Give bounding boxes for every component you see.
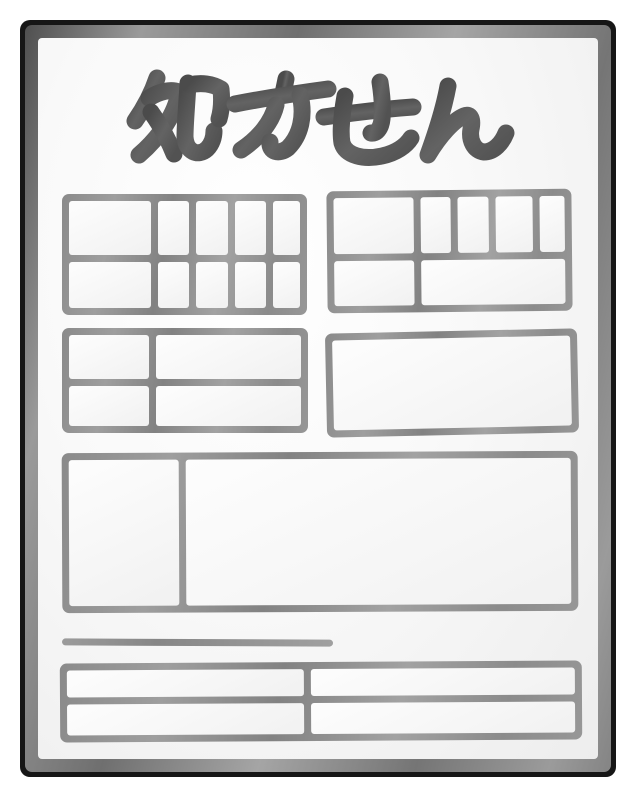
kanji-sho <box>135 78 222 155</box>
table-cell <box>495 196 533 252</box>
center-large-box <box>62 451 579 613</box>
table-cell <box>158 201 189 255</box>
table-cell <box>69 201 151 255</box>
table-cell <box>69 335 149 379</box>
table-cell <box>235 201 266 255</box>
title-calligraphy <box>126 63 520 175</box>
table-cell <box>273 262 300 308</box>
table-cell <box>196 262 228 308</box>
table-cell <box>539 196 565 252</box>
table-cell <box>158 262 189 308</box>
table-cell <box>273 201 300 255</box>
kana-se <box>324 82 413 157</box>
table-cell <box>311 701 575 734</box>
kana-n <box>428 86 506 155</box>
top-left-table <box>62 194 307 315</box>
table-cell <box>420 197 451 253</box>
top-right-table <box>326 189 572 314</box>
table-cell <box>332 336 572 431</box>
table-cell <box>67 703 304 735</box>
table-cell <box>457 197 489 253</box>
table-cell <box>69 386 149 426</box>
table-cell <box>334 260 414 306</box>
table-cell <box>156 386 301 426</box>
table-cell <box>196 201 228 255</box>
prescription-illustration: 処方せん <box>0 0 641 800</box>
table-cell <box>235 262 266 308</box>
kanji-hou <box>235 79 328 152</box>
table-cell <box>69 262 151 308</box>
table-cell <box>421 259 565 306</box>
table-cell <box>67 669 304 697</box>
bottom-table <box>60 660 582 742</box>
table-cell <box>69 460 180 606</box>
table-cell <box>311 667 575 696</box>
table-cell <box>333 197 414 254</box>
middle-right-box <box>325 328 579 437</box>
middle-left-table <box>62 328 308 433</box>
separator-line <box>62 638 333 646</box>
table-cell <box>156 335 301 379</box>
table-cell <box>186 458 572 606</box>
